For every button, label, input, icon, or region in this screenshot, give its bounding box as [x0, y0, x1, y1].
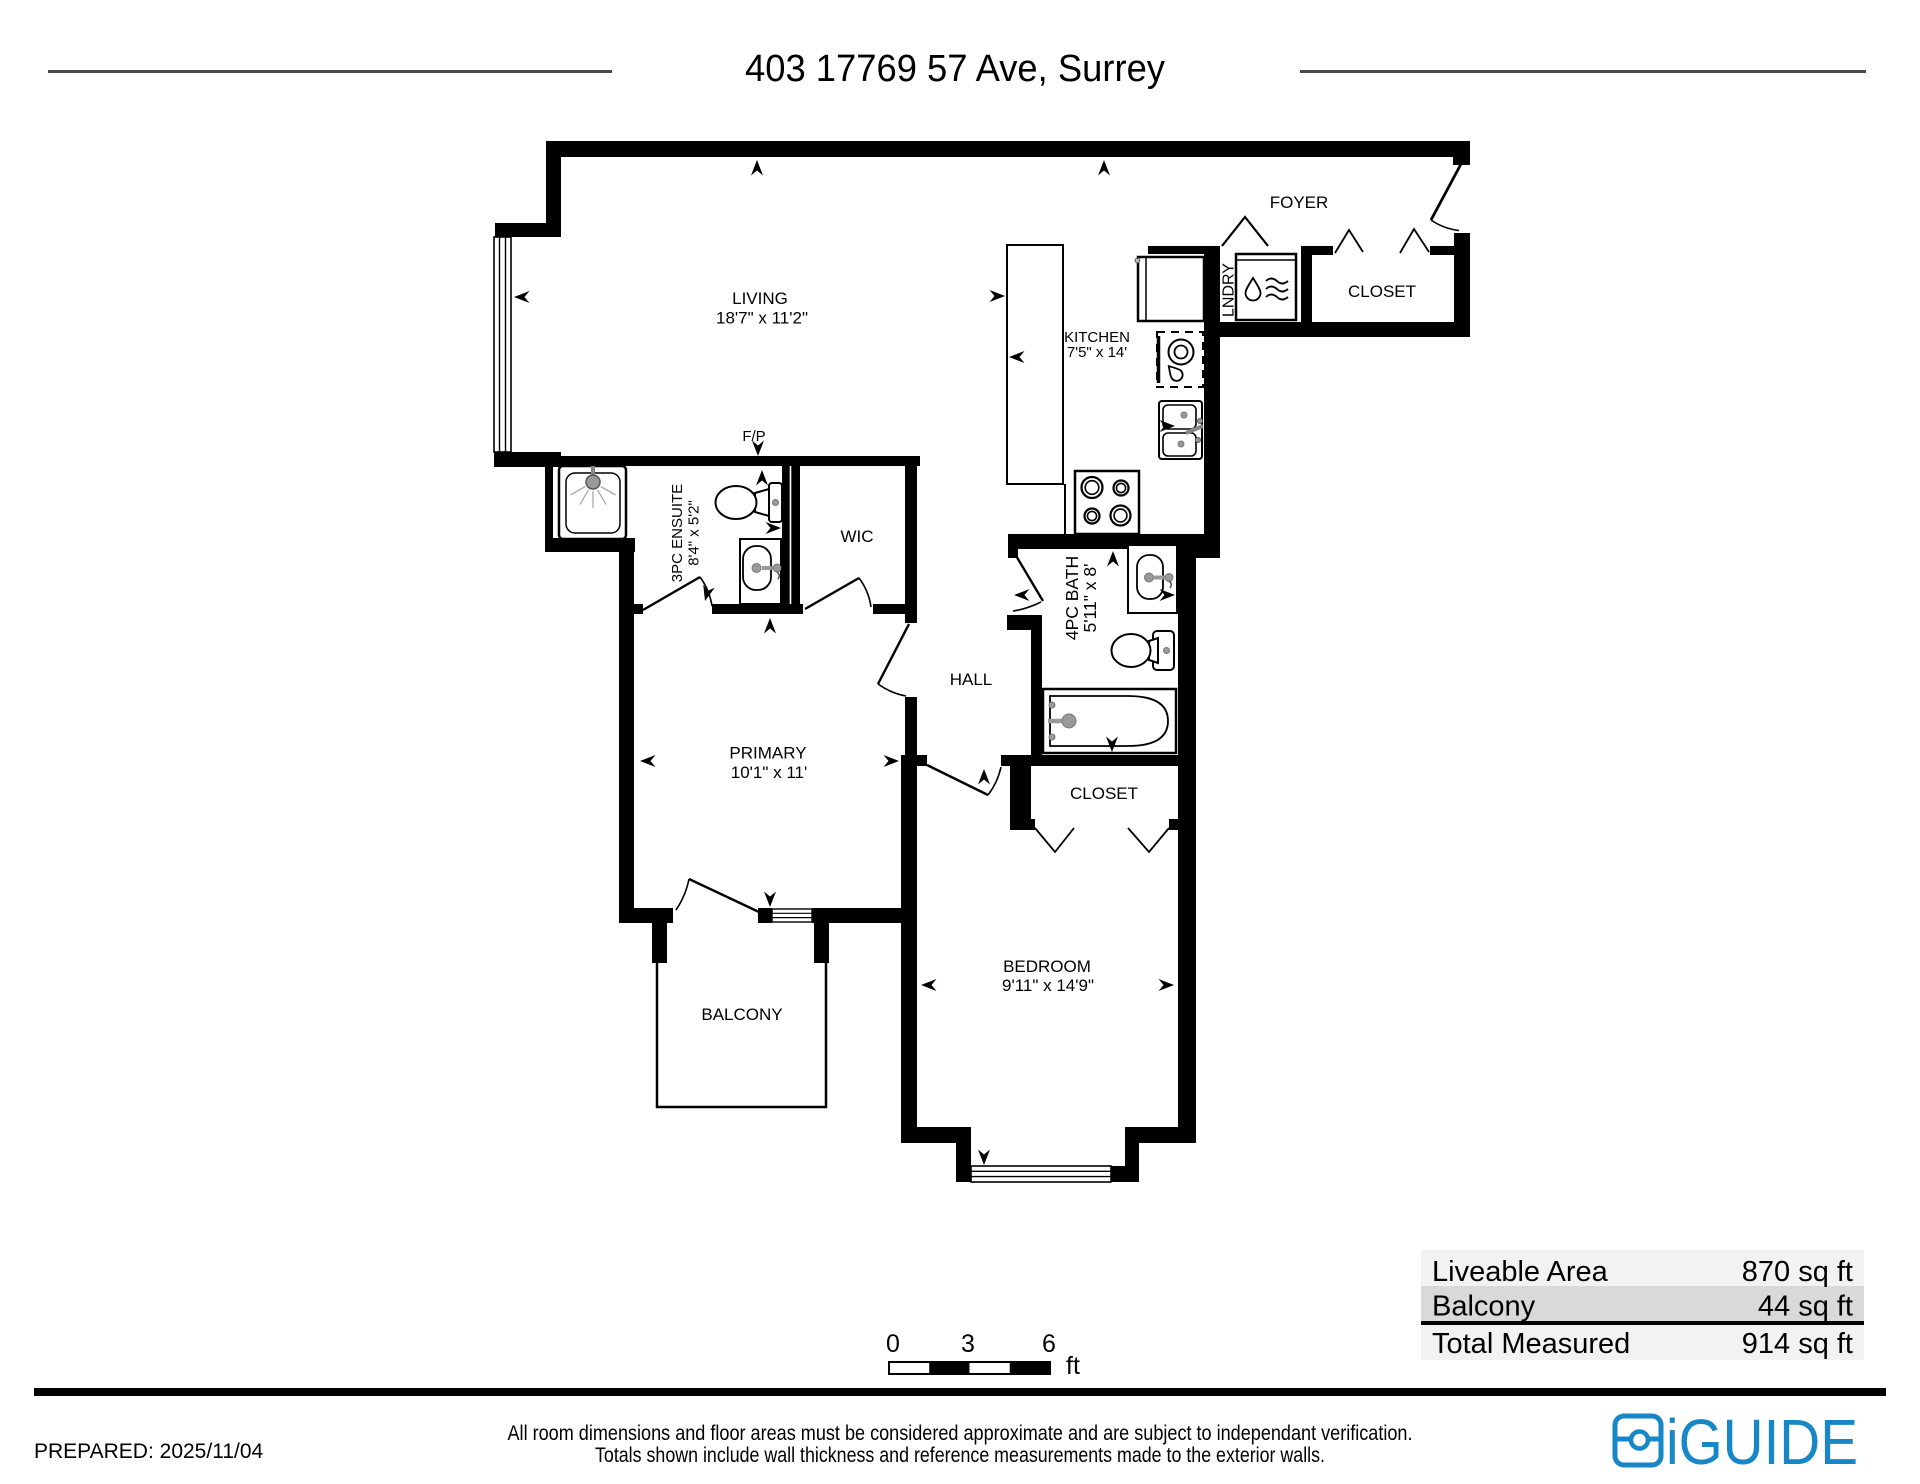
svg-text:WIC: WIC	[840, 527, 873, 546]
svg-text:3: 3	[961, 1330, 975, 1358]
svg-text:10'1" x 11': 10'1" x 11'	[731, 763, 807, 782]
svg-text:Total Measured: Total Measured	[1432, 1328, 1630, 1360]
svg-text:Totals shown include wall thic: Totals shown include wall thickness and …	[595, 1444, 1325, 1467]
svg-text:BEDROOM: BEDROOM	[1003, 957, 1091, 976]
svg-text:BALCONY: BALCONY	[701, 1005, 782, 1024]
svg-text:44 sq ft: 44 sq ft	[1758, 1291, 1853, 1323]
svg-text:5'11" x 8': 5'11" x 8'	[1080, 563, 1100, 632]
svg-text:PREPARED: 2025/11/04: PREPARED: 2025/11/04	[34, 1440, 264, 1463]
svg-text:FOYER: FOYER	[1270, 193, 1329, 212]
svg-text:All room dimensions and floor: All room dimensions and floor areas must…	[508, 1422, 1413, 1445]
svg-text:8'4" x 5'2": 8'4" x 5'2"	[686, 500, 703, 566]
svg-text:7'5" x 14': 7'5" x 14'	[1067, 344, 1127, 361]
svg-text:PRIMARY: PRIMARY	[729, 744, 806, 763]
svg-text:6: 6	[1042, 1330, 1056, 1358]
svg-text:HALL: HALL	[950, 670, 993, 689]
svg-text:9'11" x 14'9": 9'11" x 14'9"	[1002, 976, 1094, 995]
svg-text:LIVING: LIVING	[732, 289, 788, 308]
svg-text:0: 0	[886, 1330, 900, 1358]
svg-text:4PC BATH: 4PC BATH	[1062, 556, 1082, 640]
svg-text:CLOSET: CLOSET	[1070, 784, 1138, 803]
svg-text:18'7" x 11'2": 18'7" x 11'2"	[716, 309, 808, 328]
svg-text:3PC ENSUITE: 3PC ENSUITE	[669, 484, 686, 582]
svg-text:870 sq ft: 870 sq ft	[1742, 1256, 1853, 1288]
svg-text:Balcony: Balcony	[1432, 1291, 1536, 1323]
svg-text:403 17769 57 Ave, Surrey: 403 17769 57 Ave, Surrey	[745, 48, 1165, 90]
svg-text:Liveable Area: Liveable Area	[1432, 1256, 1609, 1288]
svg-text:914 sq ft: 914 sq ft	[1742, 1328, 1853, 1360]
svg-text:ft: ft	[1066, 1352, 1080, 1380]
svg-text:CLOSET: CLOSET	[1348, 282, 1416, 301]
svg-text:iGUIDE: iGUIDE	[1666, 1406, 1858, 1478]
